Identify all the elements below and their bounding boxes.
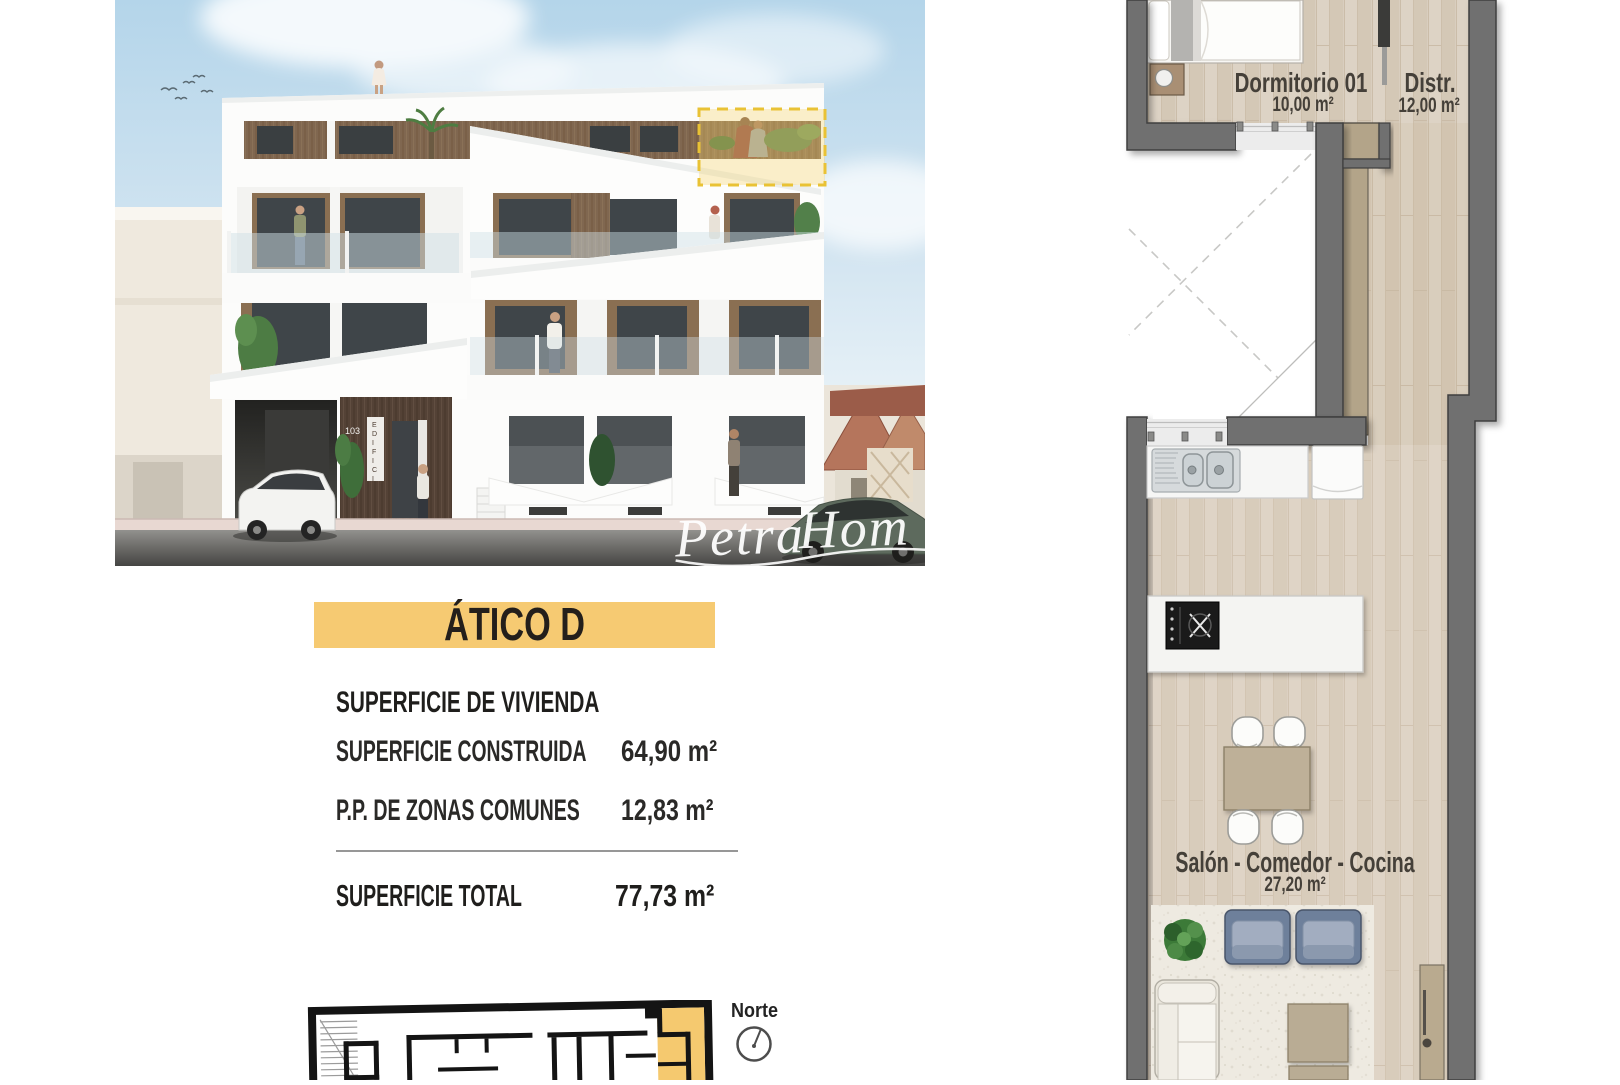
svg-text:F: F: [372, 449, 376, 456]
svg-text:10,00 m²: 10,00 m²: [1272, 92, 1333, 116]
svg-text:I: I: [372, 476, 374, 483]
svg-text:E: E: [372, 422, 377, 429]
svg-text:I: I: [372, 440, 374, 447]
svg-text:D: D: [372, 431, 377, 438]
svg-text:I: I: [372, 458, 374, 465]
svg-text:12,00 m²: 12,00 m²: [1398, 93, 1459, 117]
svg-text:27,20 m²: 27,20 m²: [1264, 872, 1325, 896]
svg-text:103: 103: [345, 426, 360, 436]
svg-text:C: C: [372, 467, 377, 474]
svg-text:Petra: Petra: [673, 504, 806, 566]
